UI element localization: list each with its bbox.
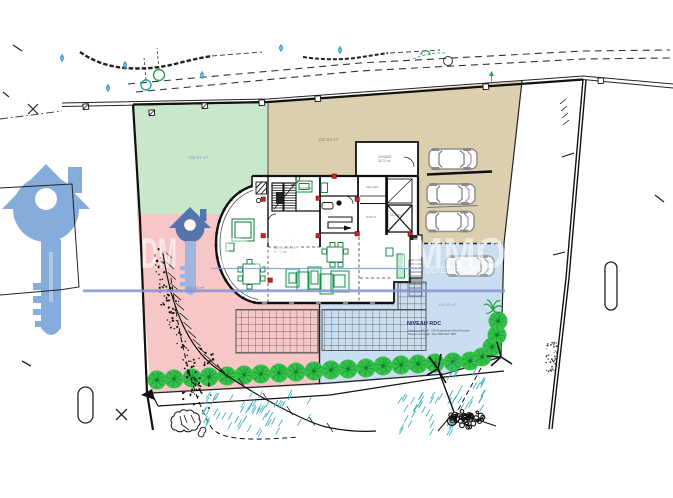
svg-text:202.53 m²: 202.53 m²	[318, 137, 339, 142]
svg-text:Niveau et energie : RA+TER RAT: Niveau et energie : RA+TER RAT TER	[408, 332, 456, 336]
svg-text:CUISINE: CUISINE	[299, 186, 311, 190]
svg-text:788.81 m²: 788.81 m²	[188, 155, 209, 160]
svg-text:DM: DM	[141, 229, 177, 278]
svg-text:DEVELOPPEMENT: DEVELOPPEMENT	[426, 265, 488, 275]
svg-text:RANGT: RANGT	[366, 215, 377, 219]
svg-text:35.1 m²: 35.1 m²	[390, 213, 401, 217]
svg-text:PRI: PRI	[218, 229, 302, 278]
svg-text:CELLIER: CELLIER	[366, 185, 379, 189]
svg-text:NIVEAU RDC: NIVEAU RDC	[407, 321, 441, 327]
svg-text:166.45 m²: 166.45 m²	[438, 302, 457, 307]
svg-text:454.43 m²: 454.43 m²	[186, 285, 205, 290]
svg-text:35.70 m²: 35.70 m²	[378, 159, 391, 163]
